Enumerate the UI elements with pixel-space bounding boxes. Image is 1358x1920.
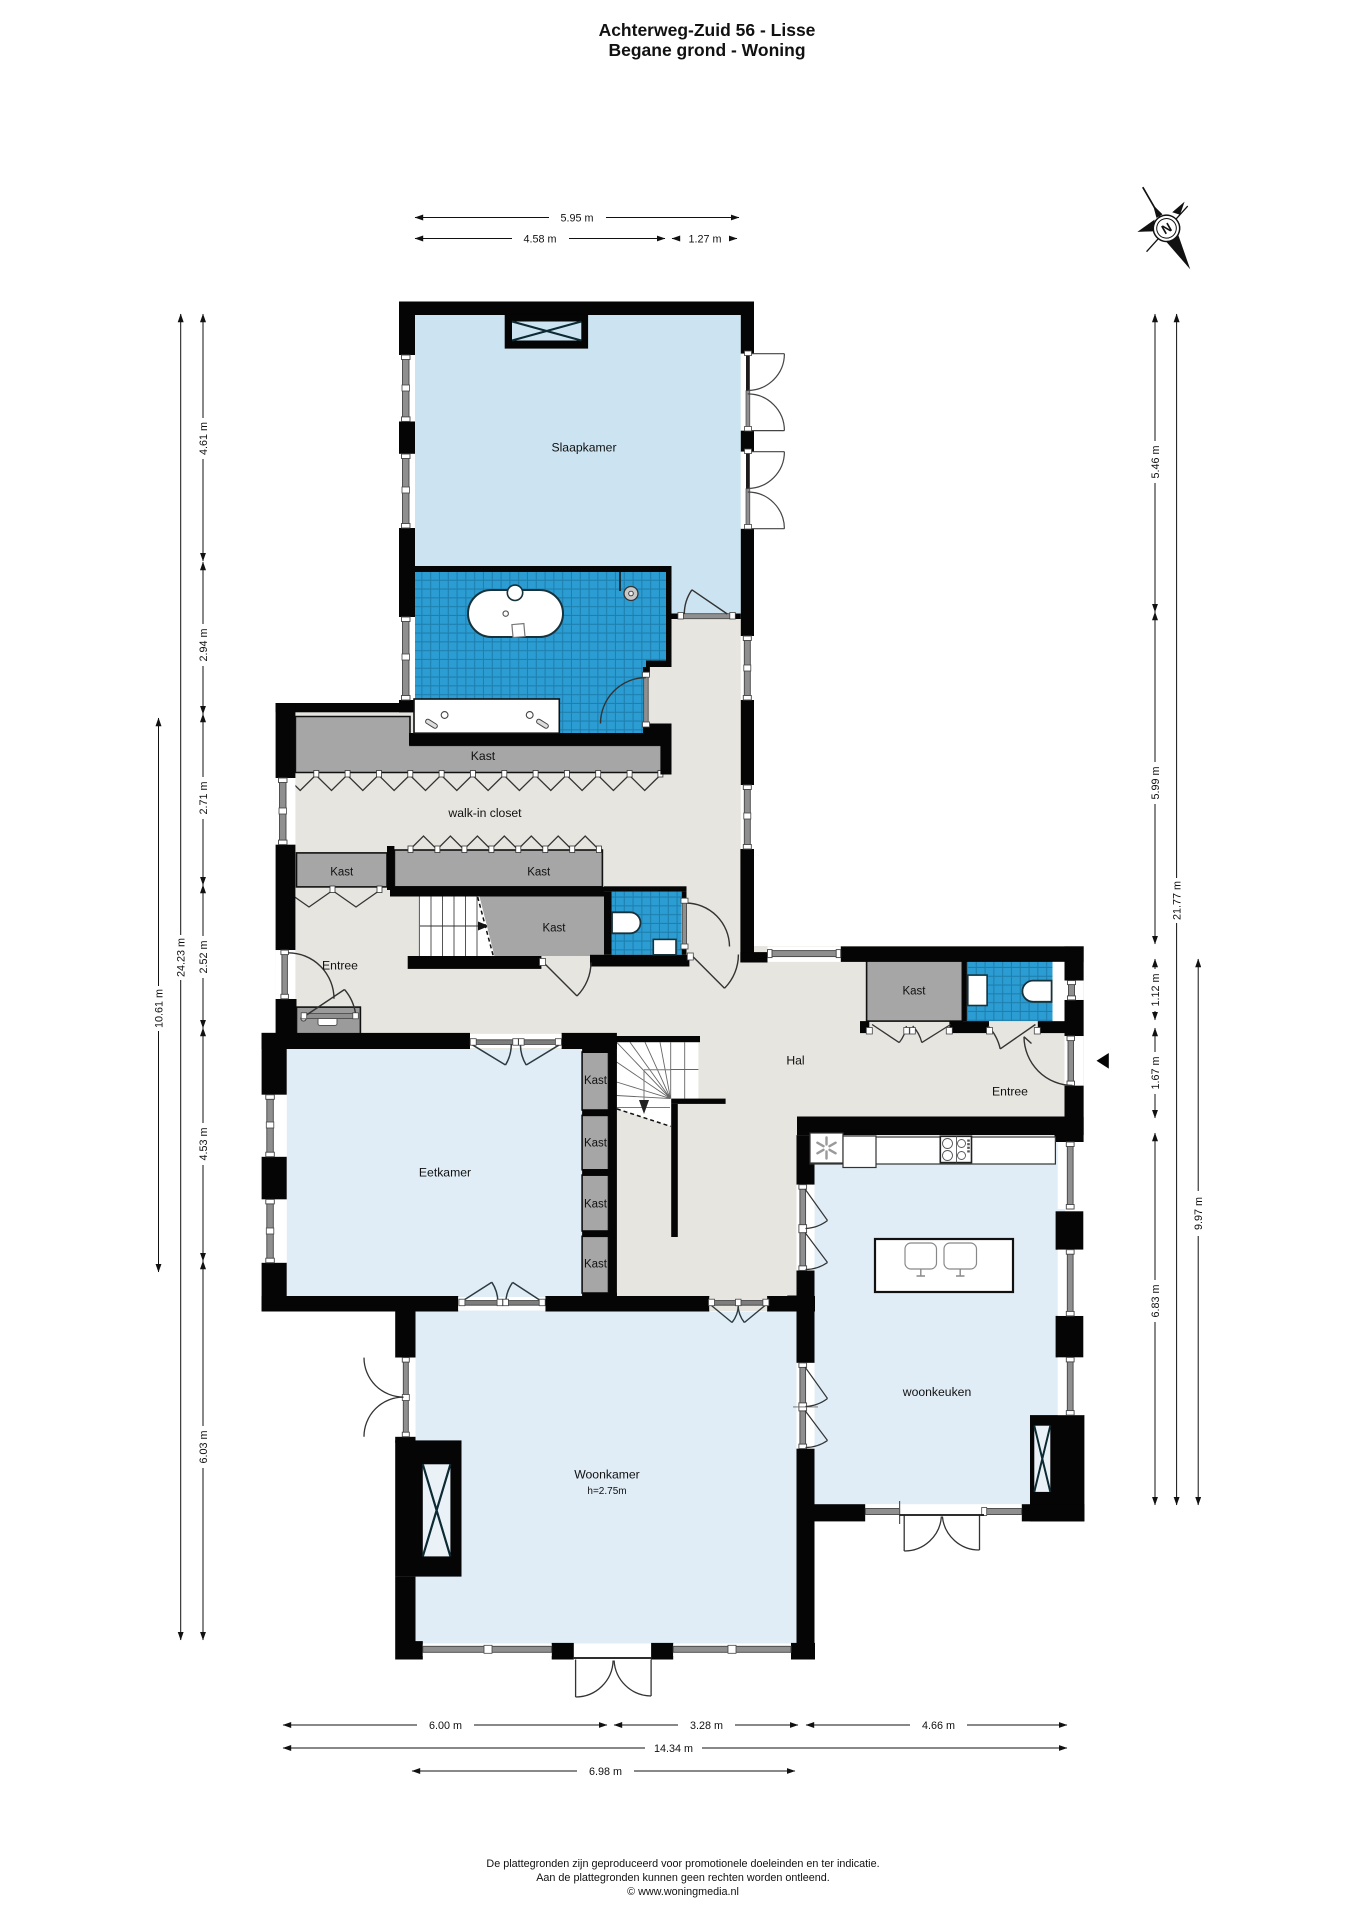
svg-text:1.27 m: 1.27 m [688,234,721,246]
svg-text:Kast: Kast [584,1138,608,1150]
svg-text:Entree: Entree [992,1085,1028,1099]
svg-text:6.98 m: 6.98 m [589,1766,622,1778]
svg-text:5.46 m: 5.46 m [1150,445,1162,478]
svg-text:2.52 m: 2.52 m [198,940,210,973]
svg-text:4.66 m: 4.66 m [922,1720,955,1732]
svg-text:Kast: Kast [584,1259,608,1271]
svg-text:Kast: Kast [471,749,496,763]
svg-text:4.61 m: 4.61 m [198,422,210,455]
svg-text:6.83 m: 6.83 m [1150,1284,1162,1317]
svg-text:3.28 m: 3.28 m [690,1720,723,1732]
svg-text:14.34 m: 14.34 m [654,1743,693,1755]
svg-text:5.95 m: 5.95 m [560,213,593,225]
svg-text:4.53 m: 4.53 m [198,1127,210,1160]
svg-text:De plattegronden zijn geproduc: De plattegronden zijn geproduceerd voor … [486,1858,879,1870]
svg-text:Woonkamer: Woonkamer [574,1468,639,1482]
svg-text:Kast: Kast [584,1075,608,1087]
svg-text:© www.woningmedia.nl: © www.woningmedia.nl [627,1886,739,1898]
svg-text:Kast: Kast [527,867,551,879]
svg-text:6.00 m: 6.00 m [429,1720,462,1732]
svg-text:Kast: Kast [330,867,354,879]
svg-text:woonkeuken: woonkeuken [902,1385,971,1399]
svg-text:1.12 m: 1.12 m [1150,973,1162,1006]
svg-text:Kast: Kast [902,986,926,998]
svg-text:4.58 m: 4.58 m [523,234,556,246]
svg-text:Begane grond - Woning: Begane grond - Woning [608,40,805,60]
svg-text:10.61 m: 10.61 m [154,989,166,1028]
svg-text:21.77 m: 21.77 m [1172,881,1184,920]
svg-text:1.67 m: 1.67 m [1150,1056,1162,1089]
svg-text:6.03 m: 6.03 m [198,1430,210,1463]
svg-text:walk-in closet: walk-in closet [447,806,522,820]
svg-text:9.97 m: 9.97 m [1193,1197,1205,1230]
svg-text:Kast: Kast [584,1199,608,1211]
svg-text:Entree: Entree [322,959,358,973]
svg-text:24.23 m: 24.23 m [176,938,188,977]
svg-text:2.71 m: 2.71 m [198,781,210,814]
svg-text:5.99 m: 5.99 m [1150,766,1162,799]
svg-text:h=2.75m: h=2.75m [587,1486,626,1497]
svg-text:Hal: Hal [786,1054,804,1068]
svg-text:Slaapkamer: Slaapkamer [551,441,616,455]
svg-text:2.94 m: 2.94 m [198,628,210,661]
svg-text:Achterweg-Zuid 56 - Lisse: Achterweg-Zuid 56 - Lisse [599,20,816,40]
svg-text:Aan de plattegronden kunnen ge: Aan de plattegronden kunnen geen rechten… [536,1872,830,1884]
svg-text:Eetkamer: Eetkamer [419,1166,471,1180]
svg-text:Kast: Kast [542,923,566,935]
